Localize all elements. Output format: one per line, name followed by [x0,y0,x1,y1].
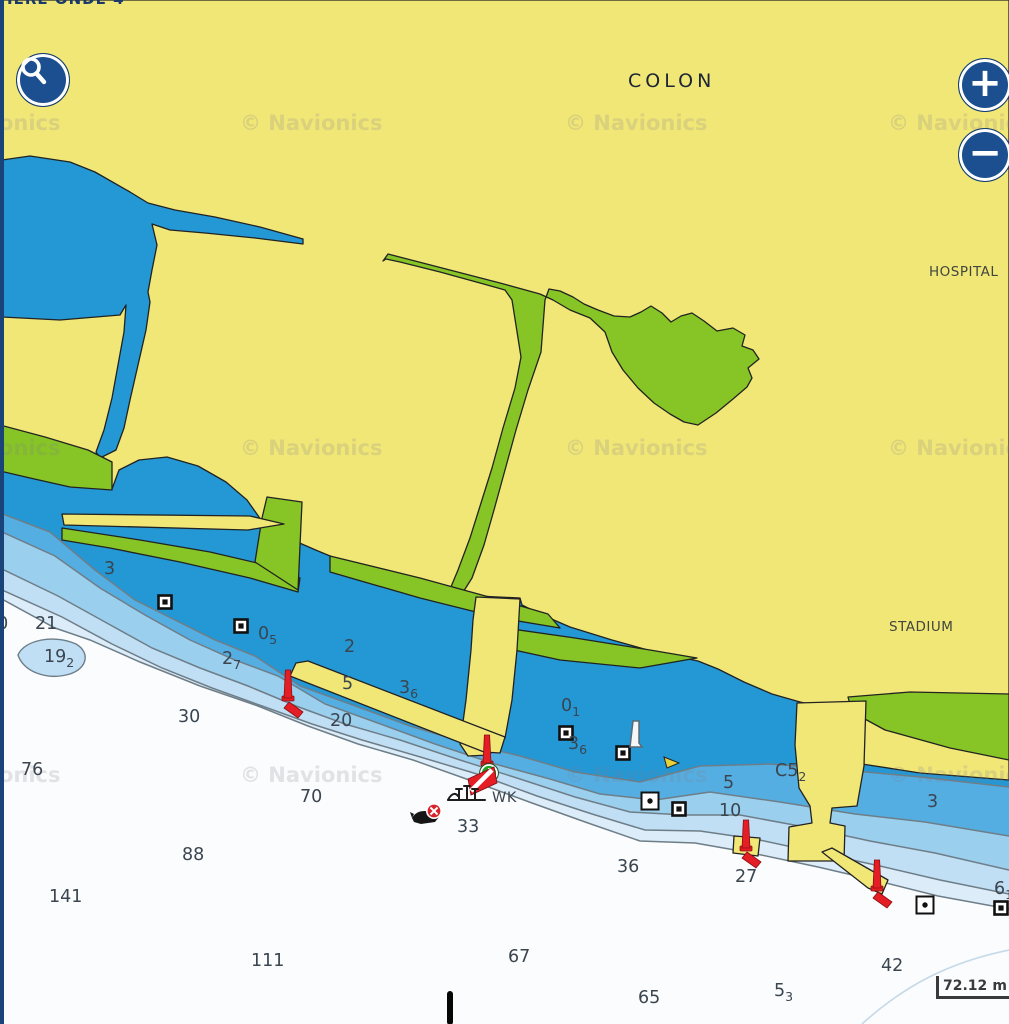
depth-sounding: 88 [182,845,204,865]
navionics-watermark: © Navionics [240,111,382,135]
search-button[interactable] [16,53,70,107]
depth-sounding: 3 [927,792,938,812]
navionics-watermark: © Navionics [0,436,60,460]
navionics-watermark: © Navionics [888,436,1009,460]
depth-sounding: 42 [881,956,903,976]
navionics-watermark: © Navionics [565,436,707,460]
zoom-out-button[interactable]: − [958,128,1009,182]
minus-icon: − [968,133,1002,173]
dot-square-beacon-icon[interactable] [642,793,659,810]
depth-sounding: 27 [735,867,757,887]
depth-sounding: 141 [49,887,82,907]
depth-sounding: 76 [21,760,43,780]
depth-sounding: 111 [251,951,284,971]
depth-sounding: 2 [344,637,355,657]
navionics-watermark: © Navionics [240,436,382,460]
navionics-chart-app: © Navionics© Navionics© Navionics© Navio… [0,0,1009,1024]
plus-icon: + [968,63,1002,103]
depth-sounding: 5 [342,674,353,694]
square-beacon-icon[interactable] [617,747,630,760]
depth-sounding: 36 [617,857,639,877]
depth-sounding: 10 [719,801,741,821]
square-beacon-icon[interactable] [673,803,686,816]
partial-chart-label: IERE ONDE 4 [7,0,125,8]
label-colon: COLON [628,70,715,92]
depth-sounding: 20 [330,711,352,731]
left-edge-strip [0,0,4,1024]
depth-sounding: 5 [723,773,734,793]
label-stadium: STADIUM [889,619,953,635]
depth-sounding: 70 [300,787,322,807]
square-beacon-icon[interactable] [235,620,248,633]
map-scale-bar: 72.12 m [936,976,1009,999]
measure-bar[interactable] [447,991,453,1024]
scale-unit: m [992,978,1007,994]
wreck-label: WK [492,790,517,806]
square-beacon-icon[interactable] [995,902,1008,915]
navionics-watermark: © Navionics [240,763,382,787]
scale-value: 72.12 [943,978,987,994]
depth-sounding: 30 [178,707,200,727]
navionics-watermark: © Navionics [0,111,60,135]
navionics-watermark: © Navionics [565,111,707,135]
nautical-chart-canvas[interactable]: © Navionics© Navionics© Navionics© Navio… [0,0,1009,1024]
label-hospital: HOSPITAL [929,264,998,280]
dot-square-beacon-icon[interactable] [917,897,934,914]
depth-sounding: 3 [104,559,115,579]
navionics-watermark: © Navionics [888,763,1009,787]
depth-sounding: 33 [457,817,479,837]
zoom-in-button[interactable]: + [958,58,1009,112]
square-beacon-icon[interactable] [159,596,172,609]
depth-sounding: 21 [35,614,57,634]
depth-sounding: 67 [508,947,530,967]
navionics-watermark: © Navionics [565,763,707,787]
depth-sounding: 65 [638,988,660,1008]
